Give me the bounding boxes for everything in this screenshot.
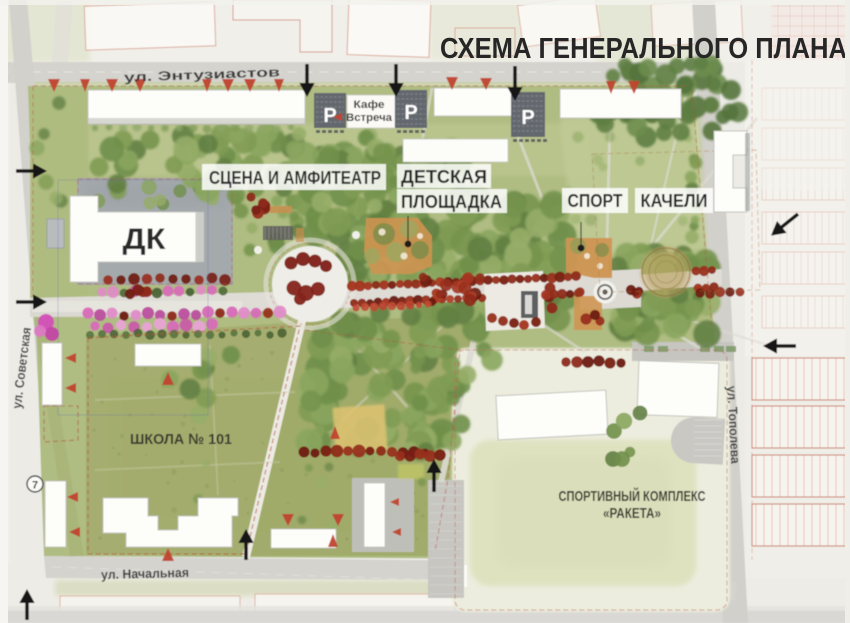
svg-text:КАЧЕЛИ: КАЧЕЛИ (641, 190, 708, 211)
svg-text:ШКОЛА № 101: ШКОЛА № 101 (130, 431, 232, 448)
svg-text:Р: Р (521, 107, 534, 129)
svg-text:СХЕМА ГЕНЕРАЛЬНОГО ПЛАНА: СХЕМА ГЕНЕРАЛЬНОГО ПЛАНА (440, 33, 847, 65)
svg-text:ДК: ДК (123, 223, 167, 256)
svg-text:Встреча: Встреча (346, 112, 393, 124)
svg-text:7: 7 (32, 480, 38, 492)
svg-text:Р: Р (323, 105, 336, 127)
svg-text:ПЛОЩАДКА: ПЛОЩАДКА (401, 191, 502, 212)
svg-text:СПОРТ: СПОРТ (568, 190, 624, 211)
svg-text:СЦЕНА И АМФИТЕАТР: СЦЕНА И АМФИТЕАТР (209, 167, 381, 188)
svg-text:«РАКЕТА»: «РАКЕТА» (603, 505, 661, 522)
svg-text:СПОРТИВНЫЙ КОМПЛЕКС: СПОРТИВНЫЙ КОМПЛЕКС (559, 487, 706, 505)
svg-text:ул. Начальная: ул. Начальная (101, 565, 189, 582)
svg-text:Кафе: Кафе (354, 99, 385, 111)
svg-text:Р: Р (404, 102, 417, 124)
svg-text:ДЕТСКАЯ: ДЕТСКАЯ (401, 166, 487, 187)
